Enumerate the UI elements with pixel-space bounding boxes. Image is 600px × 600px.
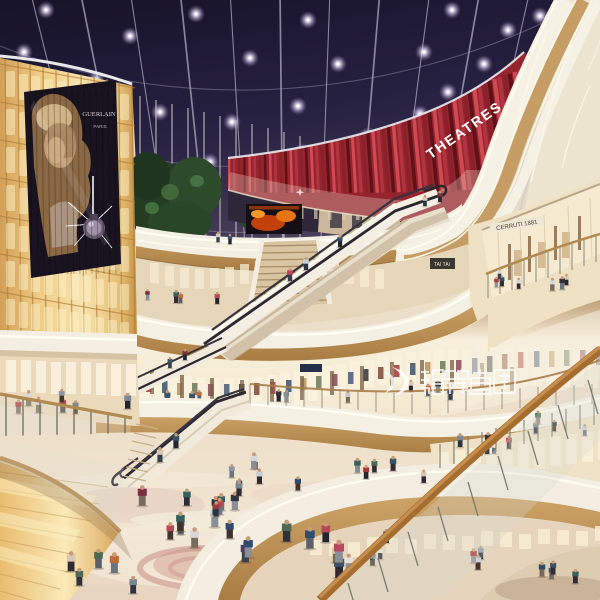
svg-text:GUERLAIN: GUERLAIN <box>82 111 116 118</box>
svg-text:PARIS: PARIS <box>93 124 106 129</box>
svg-text:TAI TAI: TAI TAI <box>434 262 450 268</box>
